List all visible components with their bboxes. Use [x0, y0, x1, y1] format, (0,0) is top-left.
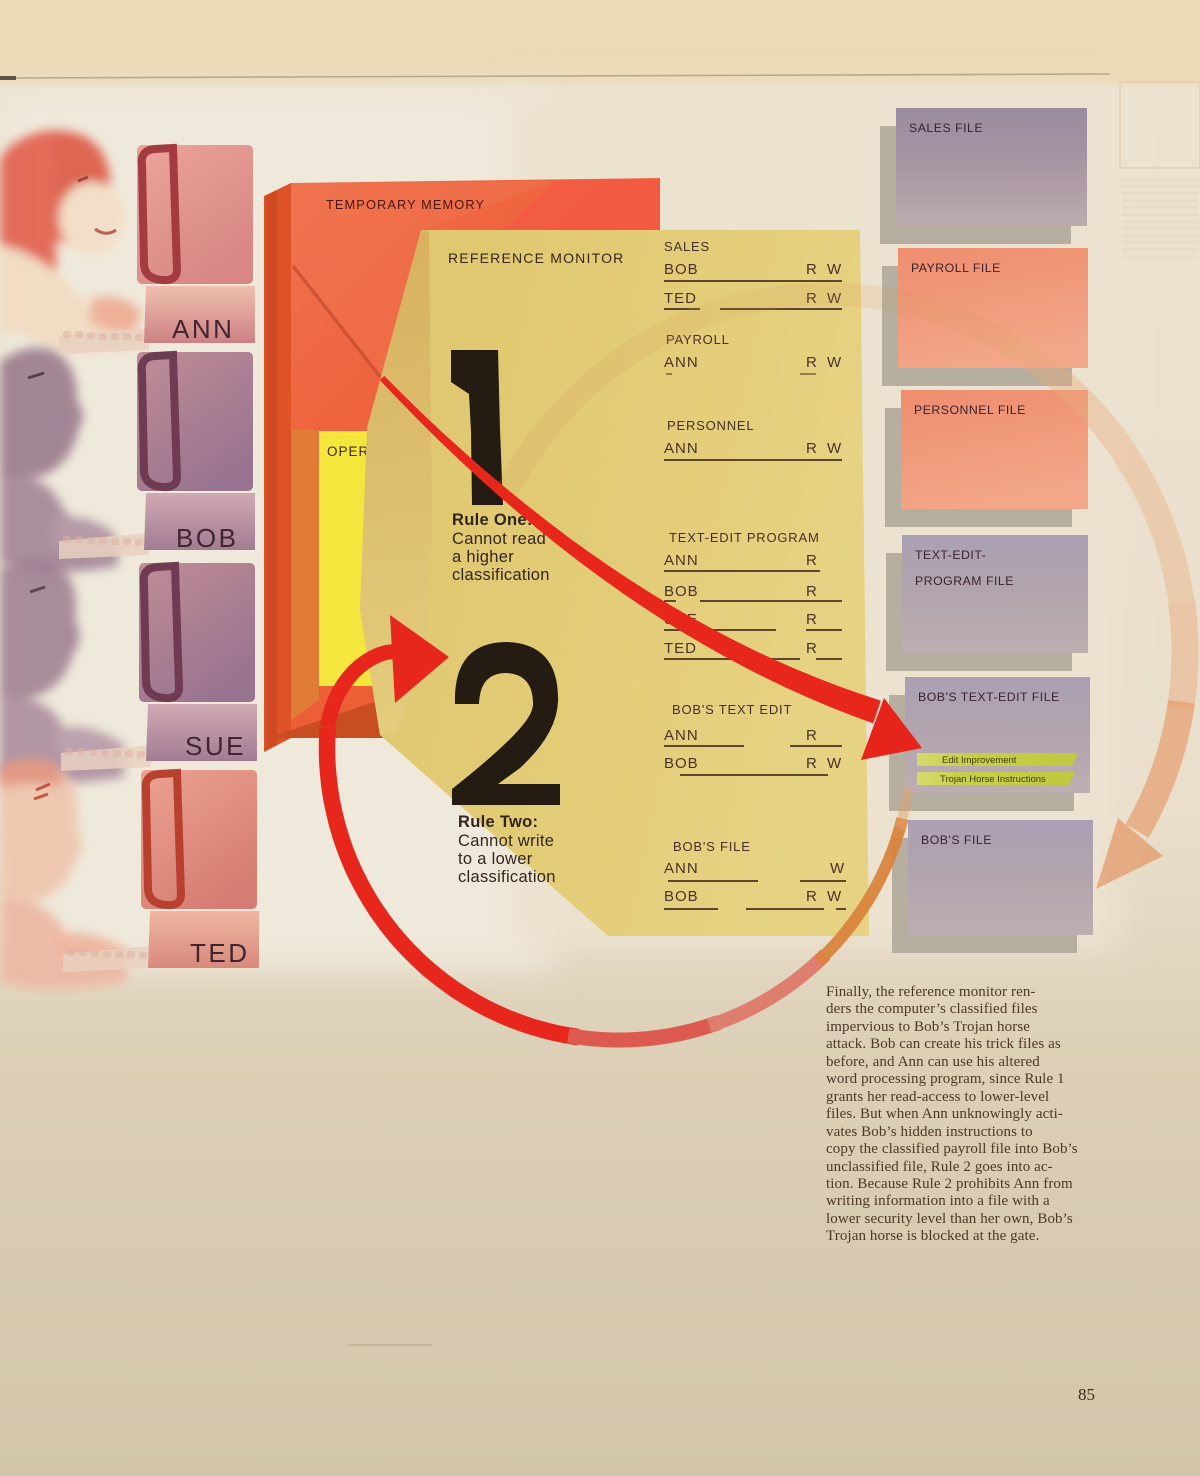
svg-text:TEXT-EDIT-: TEXT-EDIT- — [915, 548, 986, 562]
svg-text:BOB: BOB — [664, 755, 699, 772]
svg-text:BOB'S TEXT EDIT: BOB'S TEXT EDIT — [672, 702, 792, 717]
svg-text:PERSONNEL: PERSONNEL — [667, 418, 754, 433]
svg-text:R W: R W — [806, 261, 844, 278]
svg-text:Trojan Horse Instructions: Trojan Horse Instructions — [940, 774, 1046, 785]
svg-text:TED: TED — [664, 640, 697, 657]
svg-text:R W: R W — [806, 354, 844, 371]
svg-text:W: W — [830, 860, 847, 877]
svg-text:BOB'S FILE: BOB'S FILE — [673, 839, 751, 854]
svg-text:SALES FILE: SALES FILE — [909, 121, 983, 135]
svg-text:R: R — [806, 611, 820, 628]
svg-text:SALES: SALES — [664, 239, 710, 254]
svg-text:R: R — [806, 640, 820, 657]
svg-text:BOB: BOB — [664, 583, 699, 600]
svg-text:a higher: a higher — [452, 548, 514, 566]
svg-text:R: R — [806, 583, 820, 600]
svg-text:ANN: ANN — [664, 354, 699, 371]
svg-text:R W: R W — [806, 755, 844, 772]
svg-text:R: R — [806, 552, 820, 569]
svg-text:TED: TED — [190, 938, 250, 968]
svg-text:Rule Two:: Rule Two: — [458, 813, 538, 831]
svg-text:Edit Improvement: Edit Improvement — [942, 755, 1017, 766]
svg-text:TEMPORARY MEMORY: TEMPORARY MEMORY — [326, 197, 485, 212]
svg-text:BOB: BOB — [664, 261, 699, 278]
svg-text:BOB'S TEXT-EDIT FILE: BOB'S TEXT-EDIT FILE — [918, 690, 1060, 704]
svg-text:SUE: SUE — [185, 731, 246, 761]
svg-text:R: R — [806, 727, 820, 744]
svg-text:OPER: OPER — [327, 444, 369, 459]
svg-text:ANN: ANN — [172, 314, 234, 344]
svg-text:ANN: ANN — [664, 440, 699, 457]
svg-text:TED: TED — [664, 290, 697, 307]
svg-text:REFERENCE MONITOR: REFERENCE MONITOR — [448, 250, 625, 266]
svg-text:R W: R W — [806, 440, 844, 457]
svg-text:BOB: BOB — [176, 523, 238, 553]
svg-text:ANN: ANN — [664, 860, 699, 877]
svg-text:classification: classification — [452, 566, 550, 584]
svg-text:ANN: ANN — [664, 727, 699, 744]
svg-text:BOB: BOB — [664, 888, 699, 905]
svg-text:Cannot write: Cannot write — [458, 832, 554, 850]
svg-text:R W: R W — [806, 888, 844, 905]
svg-text:PERSONNEL FILE: PERSONNEL FILE — [914, 403, 1026, 417]
svg-text:Cannot read: Cannot read — [452, 530, 546, 548]
svg-text:TEXT-EDIT PROGRAM: TEXT-EDIT PROGRAM — [669, 530, 820, 545]
svg-text:BOB'S FILE: BOB'S FILE — [921, 833, 992, 847]
svg-text:PAYROLL FILE: PAYROLL FILE — [911, 261, 1001, 275]
svg-text:PROGRAM FILE: PROGRAM FILE — [915, 574, 1014, 588]
svg-text:to a lower: to a lower — [458, 850, 533, 868]
svg-text:classification: classification — [458, 868, 556, 886]
svg-text:ANN: ANN — [664, 552, 699, 569]
